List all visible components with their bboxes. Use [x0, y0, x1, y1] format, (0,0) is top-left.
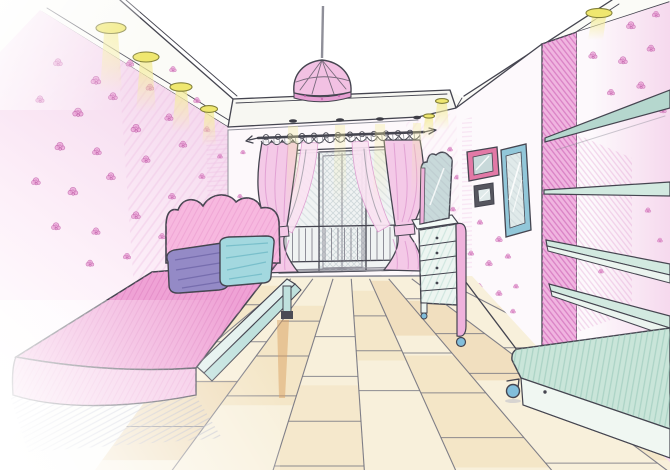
curtain-tie-right [394, 224, 415, 236]
spotlight-icon [436, 99, 449, 104]
lamp-rod [322, 6, 323, 58]
tall-blue-mirror [501, 144, 531, 237]
spotlight-icon [170, 83, 192, 91]
small-dark-frame [474, 183, 494, 207]
spotlight-icon [201, 106, 218, 113]
pink-picture-frame [467, 147, 499, 181]
sketch-page: Hand-drawn interior design sketch of a g… [0, 0, 670, 470]
spotlight-icon [586, 8, 612, 17]
dresser-corner-stile [456, 223, 466, 336]
bedroom-sketch-canvas: Hand-drawn interior design sketch of a g… [0, 0, 670, 470]
pillow-teal [220, 236, 274, 286]
dresser-mirror [420, 152, 452, 224]
bed-leg [283, 286, 291, 312]
bed-foot [281, 311, 293, 319]
bench-knob [543, 390, 546, 393]
spotlight-icon [424, 114, 435, 118]
